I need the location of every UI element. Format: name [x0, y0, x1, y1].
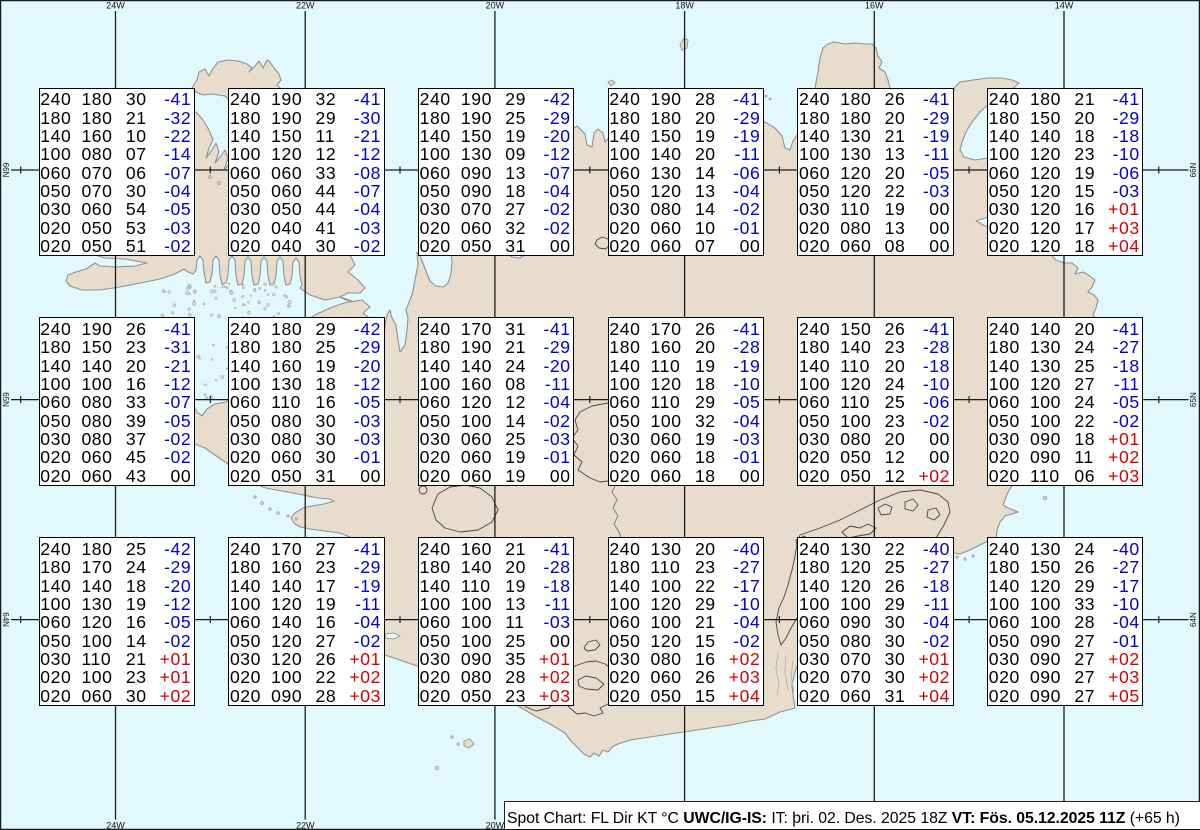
svg-text:66N: 66N: [1189, 162, 1198, 177]
svg-text:24W: 24W: [106, 820, 125, 830]
svg-text:64N: 64N: [1, 612, 10, 627]
svg-text:22W: 22W: [296, 820, 315, 830]
svg-text:65N: 65N: [1189, 392, 1198, 407]
svg-text:66N: 66N: [1, 163, 10, 178]
svg-text:18W: 18W: [675, 1, 694, 11]
svg-text:20W: 20W: [486, 820, 505, 830]
svg-text:24W: 24W: [106, 1, 125, 11]
svg-text:22W: 22W: [296, 1, 315, 11]
svg-text:65N: 65N: [1, 392, 10, 407]
svg-text:14W: 14W: [1055, 1, 1074, 11]
svg-text:20W: 20W: [486, 1, 505, 11]
svg-text:64N: 64N: [1189, 612, 1198, 627]
svg-text:16W: 16W: [865, 1, 884, 11]
